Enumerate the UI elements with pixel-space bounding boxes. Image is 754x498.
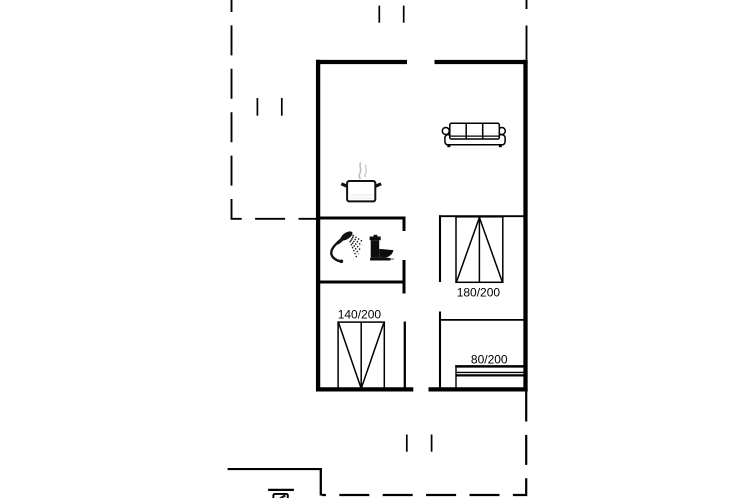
svg-text:140/200: 140/200 (338, 307, 382, 321)
svg-text:80/200: 80/200 (471, 352, 508, 366)
svg-text:180/200: 180/200 (457, 285, 501, 299)
